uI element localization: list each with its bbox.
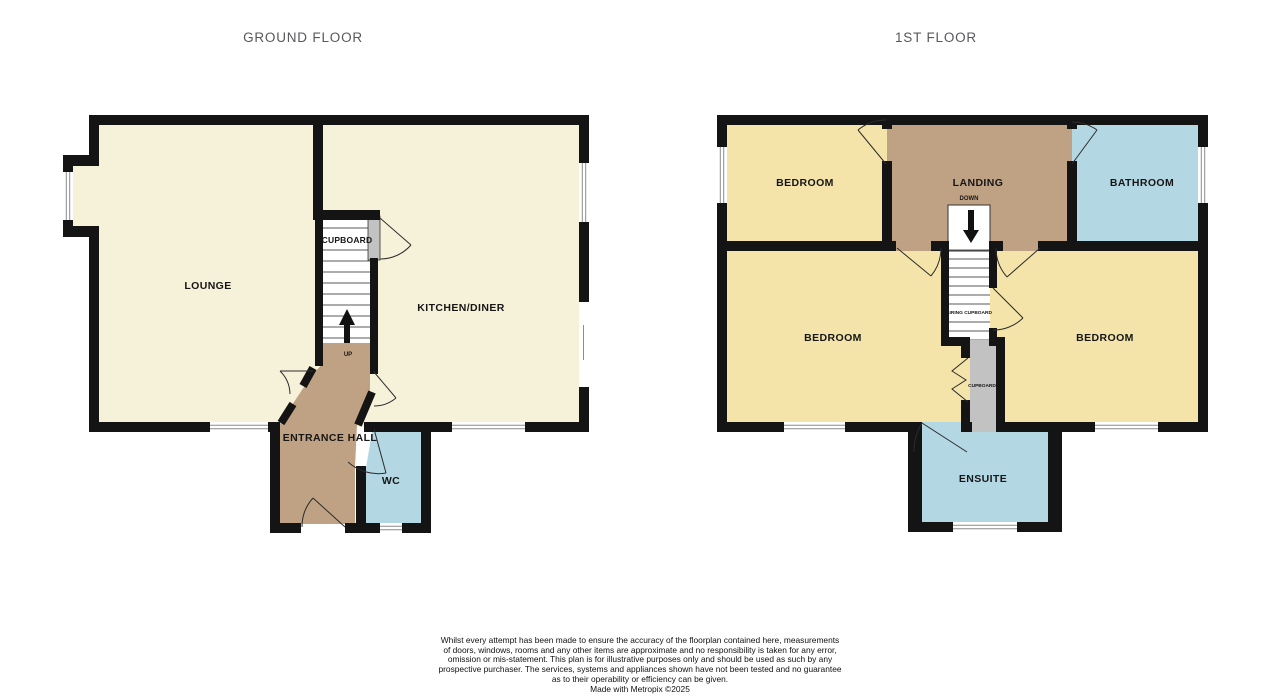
ground-floor-plan: LOUNGE CUPBOARD KITCHEN/DINER ENTRANCE H… (63, 115, 589, 533)
bedroom-right-label: BEDROOM (1076, 332, 1134, 344)
wc-label: WC (382, 475, 400, 487)
metropix-credit: Made with Metropix ©2025 (0, 685, 1280, 695)
kitchen-diner-label: KITCHEN/DINER (417, 302, 504, 314)
wc-window (380, 523, 402, 533)
bedroom-left-window (784, 422, 845, 432)
bathroom-label: BATHROOM (1110, 177, 1174, 189)
cupboard-label: CUPBOARD (322, 235, 373, 245)
cupboard-shaft-label: CUPBOARD (968, 383, 996, 389)
kitchen-front-window (452, 422, 525, 432)
first-floor-plan: BEDROOM LANDING DOWN BATHROOM BEDROOM BE… (717, 115, 1208, 532)
ensuite-label: ENSUITE (959, 473, 1007, 485)
airing-cupboard-label: AIRING CUPBOARD (946, 310, 992, 316)
lounge-label: LOUNGE (184, 280, 231, 292)
bedroom-top-label: BEDROOM (776, 177, 834, 189)
bedroom-right-window (1095, 422, 1158, 432)
kitchen-side-window (579, 163, 589, 222)
lounge-bay-window (63, 172, 73, 220)
bedroom-top-window (717, 147, 727, 203)
lounge-front-window (210, 422, 268, 432)
bedroom-left-label: BEDROOM (804, 332, 862, 344)
bathroom-window (1198, 147, 1208, 203)
landing-label: LANDING (953, 177, 1004, 189)
stairs-up-label: UP (344, 352, 352, 358)
stairs-down-label: DOWN (960, 196, 979, 202)
floorplan-canvas: LOUNGE CUPBOARD KITCHEN/DINER ENTRANCE H… (0, 0, 1280, 697)
kitchen-patio-door (579, 302, 589, 387)
entrance-hall-label: ENTRANCE HALL (283, 432, 378, 444)
disclaimer: Whilst every attempt has been made to en… (0, 636, 1280, 694)
ensuite-window (953, 522, 1017, 532)
